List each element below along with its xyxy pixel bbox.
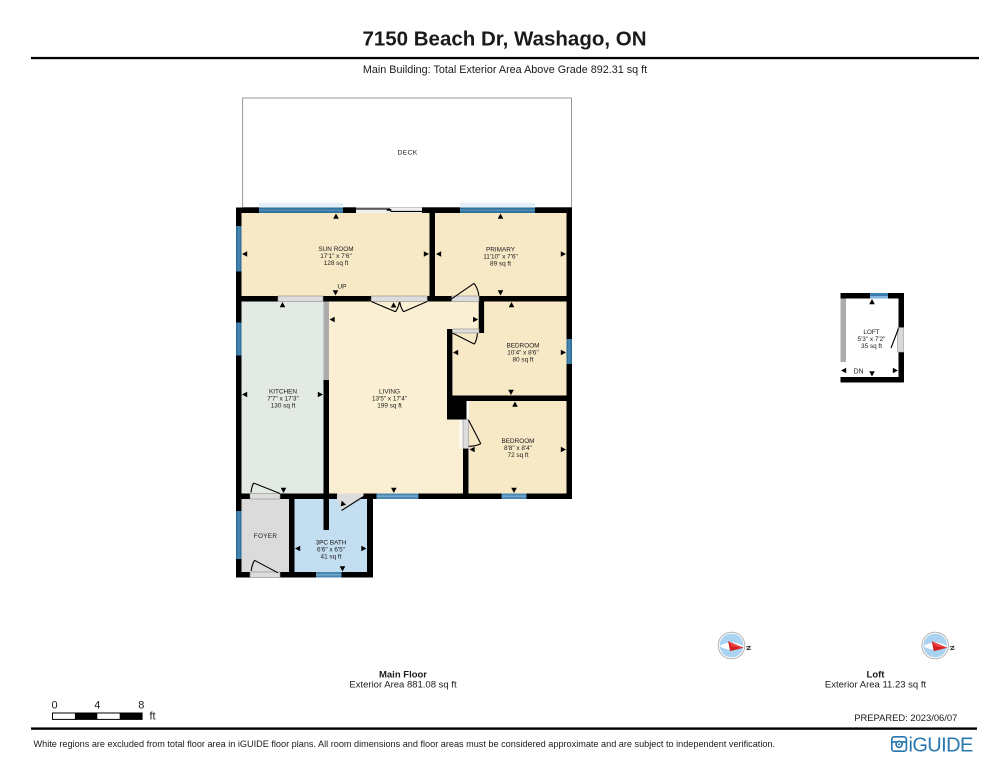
svg-text:BEDROOM: BEDROOM <box>501 438 534 445</box>
svg-text:ft: ft <box>150 711 156 723</box>
svg-text:3PC BATH: 3PC BATH <box>316 540 347 547</box>
svg-text:iGUIDE: iGUIDE <box>909 735 973 757</box>
svg-text:Main Building: Total Exterior: Main Building: Total Exterior Area Above… <box>363 64 647 76</box>
svg-text:7150 Beach Dr, Washago, ON: 7150 Beach Dr, Washago, ON <box>362 27 646 50</box>
svg-text:LIVING: LIVING <box>379 389 400 396</box>
svg-text:White regions are excluded fro: White regions are excluded from total fl… <box>34 739 776 749</box>
svg-text:Exterior Area 881.08 sq ft: Exterior Area 881.08 sq ft <box>349 679 457 690</box>
svg-text:DN: DN <box>853 369 863 376</box>
svg-text:UP: UP <box>337 284 347 291</box>
svg-text:128 sq ft: 128 sq ft <box>324 260 349 267</box>
svg-text:130 sq ft: 130 sq ft <box>271 402 296 409</box>
svg-text:PRIMARY: PRIMARY <box>486 247 516 254</box>
svg-text:35 sq ft: 35 sq ft <box>861 343 882 350</box>
svg-text:N: N <box>744 645 752 651</box>
svg-text:LOFT: LOFT <box>863 329 879 336</box>
svg-text:8: 8 <box>138 700 144 712</box>
svg-text:DECK: DECK <box>397 150 417 157</box>
svg-text:KITCHEN: KITCHEN <box>269 389 297 396</box>
svg-text:89 sq ft: 89 sq ft <box>490 260 511 267</box>
svg-text:BEDROOM: BEDROOM <box>506 343 539 350</box>
svg-text:72 sq ft: 72 sq ft <box>508 452 529 459</box>
svg-text:FOYER: FOYER <box>254 533 278 540</box>
svg-text:0: 0 <box>51 700 57 712</box>
svg-text:Exterior Area 11.23 sq ft: Exterior Area 11.23 sq ft <box>825 679 927 690</box>
svg-text:SUN ROOM: SUN ROOM <box>318 246 353 253</box>
svg-text:41 sq ft: 41 sq ft <box>321 553 342 560</box>
svg-text:80 sq ft: 80 sq ft <box>513 356 534 363</box>
svg-text:N: N <box>948 645 956 651</box>
svg-text:199 sq ft: 199 sq ft <box>377 402 402 409</box>
svg-text:PREPARED: 2023/06/07: PREPARED: 2023/06/07 <box>854 712 957 723</box>
svg-text:4: 4 <box>94 700 100 712</box>
